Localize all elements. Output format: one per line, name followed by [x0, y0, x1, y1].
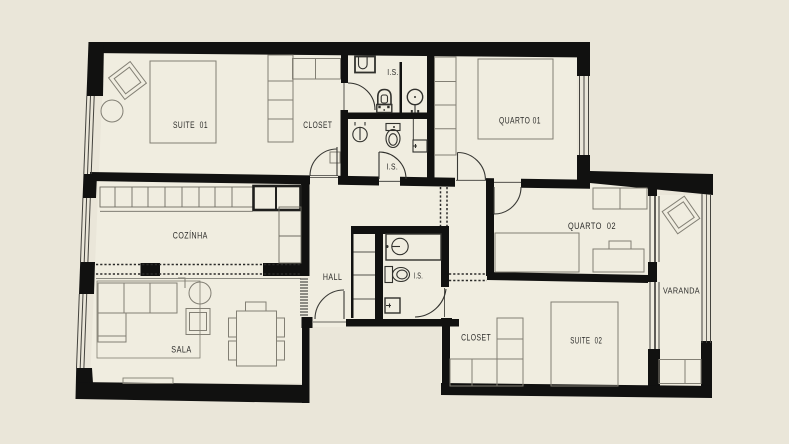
- svg-text:CLOSET: CLOSET: [461, 332, 491, 342]
- svg-text:SUITE 02: SUITE 02: [570, 336, 602, 346]
- svg-text:I.S.: I.S.: [414, 272, 424, 281]
- svg-text:SALA: SALA: [171, 344, 192, 354]
- svg-text:I.S.: I.S.: [387, 163, 399, 172]
- svg-text:HALL: HALL: [323, 272, 343, 282]
- svg-text:COZÍNHA: COZÍNHA: [173, 231, 208, 241]
- svg-text:SUITE 01: SUITE 01: [173, 120, 208, 130]
- svg-text:QUARTO 02: QUARTO 02: [568, 221, 616, 231]
- svg-text:VARANDA: VARANDA: [663, 286, 700, 295]
- svg-text:CLOSET: CLOSET: [303, 120, 332, 130]
- svg-text:I.S.: I.S.: [387, 68, 399, 77]
- svg-text:QUARTO 01: QUARTO 01: [499, 115, 541, 125]
